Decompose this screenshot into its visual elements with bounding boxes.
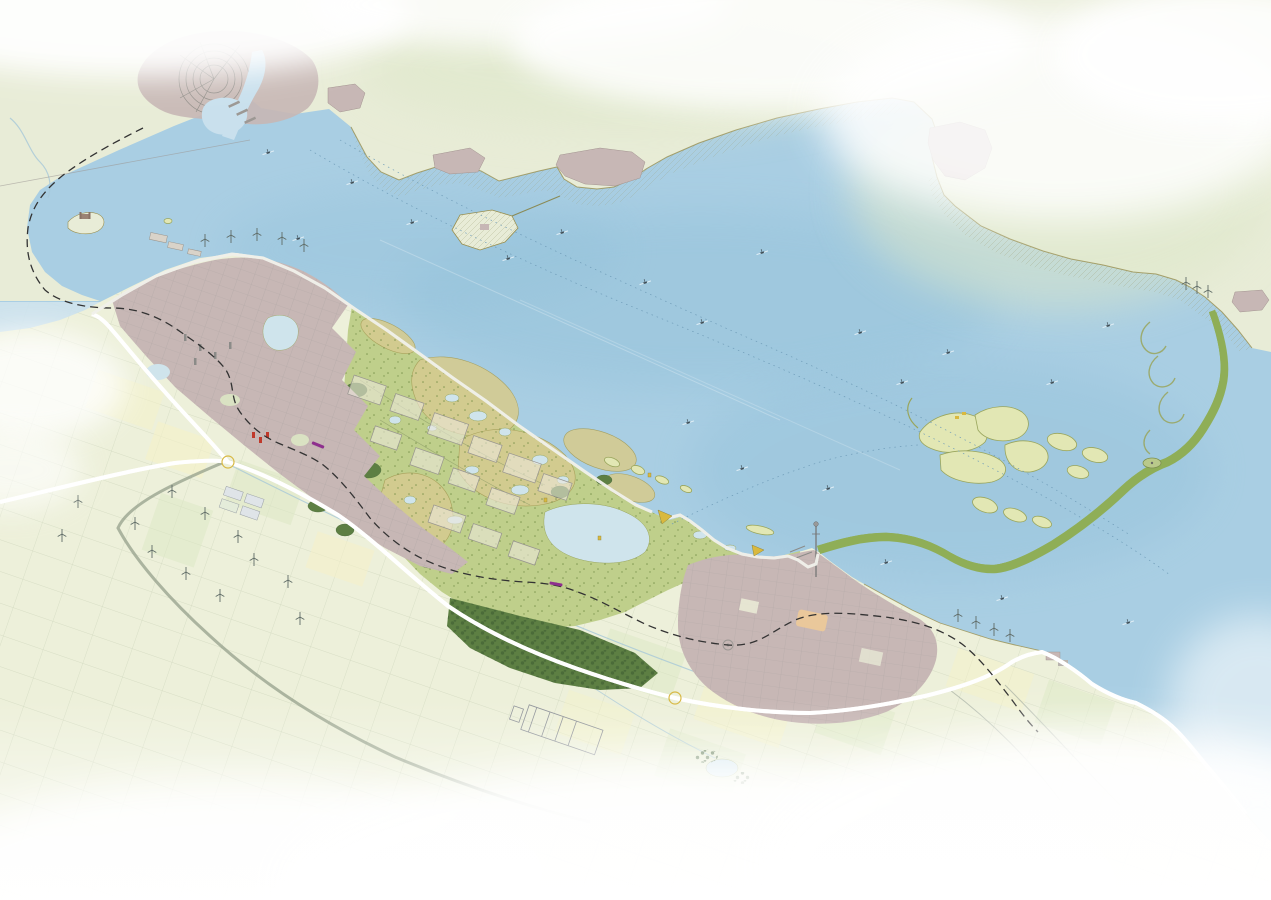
tower-top (814, 522, 819, 527)
highrise-icon (229, 342, 232, 349)
island-cabin-icon (955, 416, 959, 419)
red-tower-icon (259, 437, 262, 443)
marsh-pond (389, 416, 401, 424)
red-tower-icon (252, 432, 255, 438)
city-park (291, 434, 309, 446)
marsh-pond (499, 428, 511, 436)
watchtower-icon (598, 536, 601, 540)
highrise-icon (214, 352, 217, 359)
marsh-pond (445, 394, 459, 402)
city-lake (263, 315, 298, 350)
city-park (220, 394, 240, 406)
fortress-islet (164, 219, 172, 224)
highrise-icon (184, 334, 187, 341)
watchtower-icon (544, 498, 547, 502)
peninsula-village (480, 224, 489, 230)
marsh-pond (404, 496, 416, 504)
marsh-pond (511, 485, 529, 495)
illustrated-map (0, 0, 1271, 900)
map-canvas (0, 0, 1271, 900)
dike-harbor-building (1151, 462, 1153, 464)
bottom-fade (0, 700, 1271, 900)
highrise-icon (194, 358, 197, 365)
island-cabin-icon (962, 412, 966, 415)
marsh-pond (469, 411, 487, 421)
watchtower-icon (648, 473, 651, 477)
